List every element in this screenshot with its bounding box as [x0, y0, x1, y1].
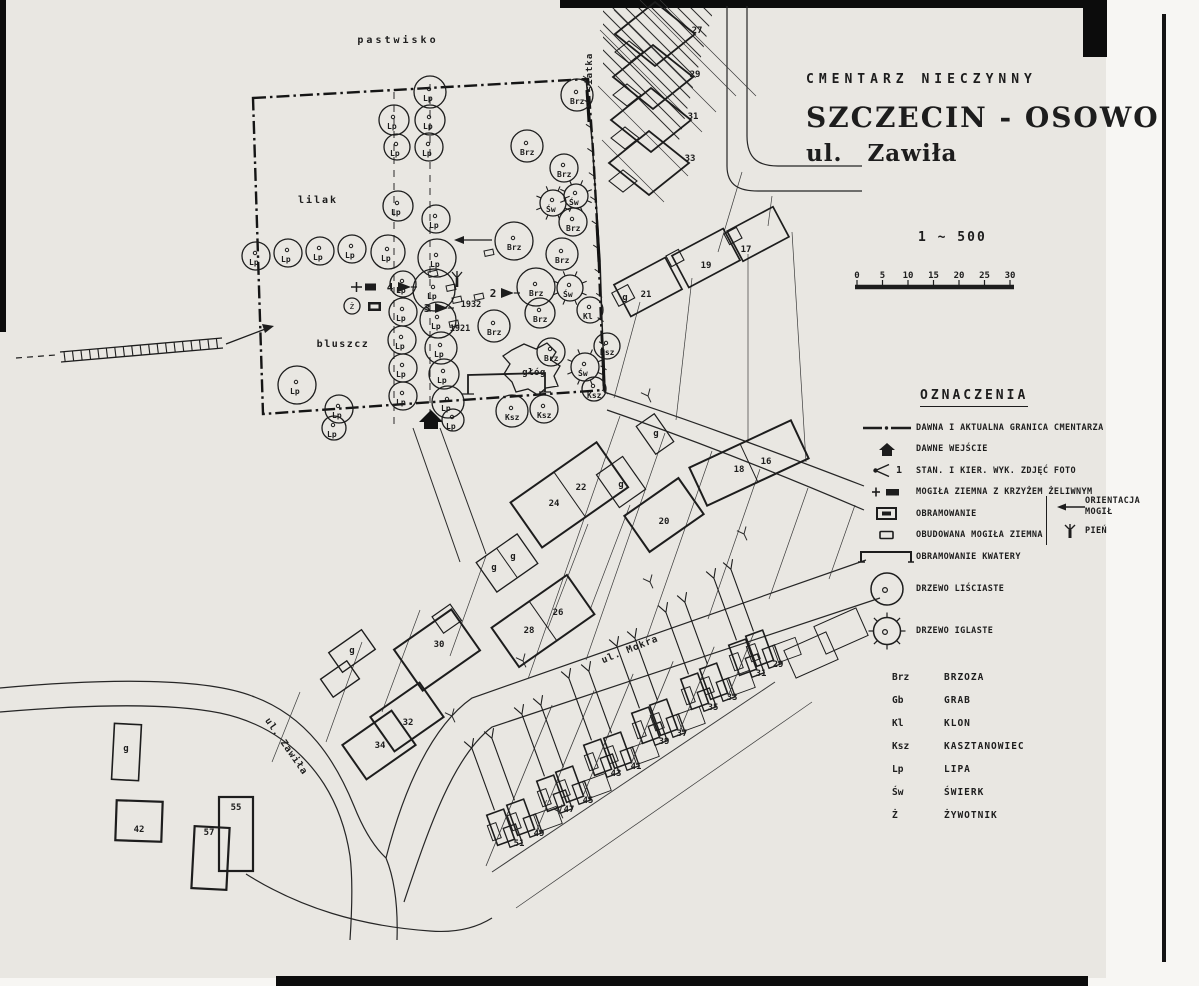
house-number: 41 [631, 762, 642, 772]
house-number: 51 [514, 839, 525, 849]
quarter-frame-icon [858, 548, 916, 565]
tree-label: Lp [396, 314, 406, 323]
house-number: g [491, 563, 496, 573]
scale-tick-label: 10 [903, 271, 914, 281]
house-number: 29 [773, 660, 784, 670]
legend-item: 1STAN. I KIER. WYK. ZDJĘĆ FOTO [858, 460, 1163, 482]
species-name: KLON [944, 718, 971, 729]
orientation-arrow-icon [1055, 502, 1085, 512]
scan-edge-bottom [276, 976, 1088, 986]
legend: OZNACZENIA DAWNA I AKTUALNA GRANICA CMEN… [858, 384, 1163, 827]
species-name: BRZOZA [944, 672, 984, 683]
legend-heading: OZNACZENIA [920, 388, 1028, 407]
house-number: 26 [553, 608, 564, 618]
tree-label: Lp [423, 94, 433, 103]
tree-label: Lp [249, 258, 259, 267]
tree-label: Lp [313, 253, 323, 262]
house-number: 34 [375, 741, 386, 751]
house-number: 33 [685, 154, 696, 164]
plan-title: SZCZECIN - OSOWO [806, 101, 1136, 134]
legend-item: OBRAMOWANIE KWATERY [858, 546, 1163, 568]
legend-item-label: DAWNA I AKTUALNA GRANICA CMENTARZA [916, 423, 1104, 433]
house-number: 24 [549, 499, 560, 509]
tree-label: ż [349, 302, 354, 312]
tree-label: Lp [446, 422, 456, 431]
map-label: siatka [584, 53, 595, 92]
species-name: LIPA [944, 764, 971, 775]
scale-tick-label: 25 [979, 271, 990, 281]
iron-cross-grave [365, 284, 376, 291]
species-abbr: Ksz [892, 741, 944, 752]
house-number: g [123, 744, 128, 754]
tree-deciduous-icon [858, 570, 916, 608]
legend-item: DRZEWO IGLASTE [858, 610, 1163, 652]
tree-label: Brz [570, 97, 585, 106]
built-grave-icon [858, 530, 916, 540]
legend-item-label: DRZEWO LIŚCIASTE [916, 584, 1004, 594]
house-number: 18 [734, 465, 745, 475]
tree-label: Lp [390, 149, 400, 158]
tree-label: Św [578, 367, 588, 378]
tree-label: Brz [533, 315, 548, 324]
obramowanie-map [368, 302, 381, 311]
boundary-line-icon [858, 421, 916, 435]
cemetery-status: CMENTARZ NIECZYNNY [806, 72, 1136, 87]
species-abbreviation: LpLIPA [892, 758, 1163, 781]
house-number: 31 [688, 112, 699, 122]
house-number: g [622, 293, 627, 303]
tree-label: Lp [396, 370, 406, 379]
tree-label: Brz [507, 243, 522, 252]
species-name: KASZTANOWIEC [944, 741, 1025, 752]
tree-label: Św [546, 203, 556, 214]
map-label: bluszcz [317, 339, 370, 350]
photo-station-icon: 1 [858, 463, 916, 478]
legend-item-label: DAWNE WEJŚCIE [916, 444, 988, 454]
house-number: 37 [677, 729, 688, 739]
legend-item-label: ORIENTACJA MOGIŁ [1085, 496, 1172, 517]
house-number: 43 [611, 769, 622, 779]
species-abbr: Gb [892, 695, 944, 706]
house-number: 28 [524, 626, 535, 636]
tree-label: Św [563, 288, 573, 299]
tree-label: Lp [387, 122, 397, 131]
species-name: GRAB [944, 695, 971, 706]
legend-item-label: OBUDOWANA MOGIŁA ZIEMNA [916, 530, 1043, 540]
species-abbr: Ż [892, 810, 944, 821]
tree-label: Lp [290, 387, 300, 396]
house-number: 20 [659, 517, 670, 527]
scale-tick-label: 5 [880, 271, 885, 281]
tree-label: Brz [566, 224, 581, 233]
house-number: 21 [641, 290, 652, 300]
house-number: g [653, 429, 658, 439]
house-number: 39 [659, 737, 670, 747]
legend-item: DRZEWO LIŚCIASTE [858, 568, 1163, 610]
house-number: 35 [708, 703, 719, 713]
house-number: 17 [741, 245, 752, 255]
species-abbreviation: ŚwŚWIERK [892, 781, 1163, 804]
tree-label: Lp [423, 122, 433, 131]
tree-label: Lp [345, 251, 355, 260]
species-name: ŻYWOTNIK [944, 810, 998, 821]
tree-label: Kl [583, 312, 593, 321]
species-abbreviation: GbGRAB [892, 689, 1163, 712]
tree-label: Św [569, 196, 579, 207]
map-label: głóg [522, 367, 546, 378]
grave-cross-icon [858, 486, 916, 498]
frame-filled-icon [858, 507, 916, 520]
tree-label: Brz [544, 354, 559, 363]
species-abbreviation: KlKLON [892, 712, 1163, 735]
entrance-arrow-icon [858, 443, 916, 456]
legend-side-item: PIEŃ [1055, 523, 1172, 539]
tree-label: Lp [281, 255, 291, 264]
house-number: 32 [403, 718, 414, 728]
tree-label: Brz [529, 289, 544, 298]
scale-tick-label: 30 [1005, 271, 1016, 281]
tree-label: Lp [396, 398, 406, 407]
svg-text:3: 3 [424, 302, 431, 315]
tree-label: Lp [327, 430, 337, 439]
tree-label: Ksz [537, 411, 552, 420]
species-name: ŚWIERK [944, 787, 984, 798]
tree-label: Lp [381, 254, 391, 263]
house-number: 29 [690, 70, 701, 80]
house-number: g [510, 552, 515, 562]
svg-text:2: 2 [490, 287, 497, 300]
title-block: CMENTARZ NIECZYNNY SZCZECIN - OSOWO ul. … [806, 72, 1136, 167]
photo-sample-number: 1 [896, 465, 902, 476]
house-number: 47 [564, 805, 575, 815]
tree-label: Brz [520, 148, 535, 157]
grave-date: 1932 [461, 300, 481, 310]
house-number: 45 [583, 796, 594, 806]
legend-tree-items: DRZEWO LIŚCIASTEDRZEWO IGLASTE [858, 568, 1163, 652]
house-number: g [618, 480, 623, 490]
scan-edge-top [560, 0, 1106, 8]
species-abbr: Kl [892, 718, 944, 729]
house-number: 16 [761, 457, 772, 467]
species-abbreviation: ŻŻYWOTNIK [892, 804, 1163, 827]
map-label: lilak [298, 194, 338, 206]
species-abbreviation: BrzBRZOZA [892, 666, 1163, 689]
tree-label: Lp [430, 260, 440, 269]
grave-date: 1921 [450, 324, 470, 334]
tree-coniferous-icon [858, 611, 916, 651]
legend-item: DAWNE WEJŚCIE [858, 439, 1163, 461]
tree-label: Ksz [600, 348, 615, 357]
legend-item-label: PIEŃ [1085, 526, 1107, 537]
legend-side-items: ORIENTACJA MOGIŁPIEŃ [1046, 496, 1172, 545]
tree-label: Brz [487, 328, 502, 337]
scale-tick-label: 0 [854, 271, 859, 281]
legend-item-label: STAN. I KIER. WYK. ZDJĘĆ FOTO [916, 466, 1076, 476]
house-number: 57 [204, 828, 215, 838]
house-number: 30 [434, 640, 445, 650]
legend-item-label: DRZEWO IGLASTE [916, 626, 993, 636]
svg-text:4: 4 [387, 281, 394, 294]
legend-abbreviations: BrzBRZOZAGbGRABKlKLONKszKASZTANOWIECLpLI… [892, 666, 1163, 827]
plan-street: ul. Zawiła [806, 140, 1136, 167]
legend-item-label: OBRAMOWANIE [916, 509, 977, 519]
tree-label: Lp [395, 342, 405, 351]
house-number: 19 [701, 261, 712, 271]
house-number: 27 [692, 26, 703, 36]
legend-side-item: ORIENTACJA MOGIŁ [1055, 496, 1172, 517]
tree-label: Ksz [587, 391, 602, 400]
scale-ratio: 1 ~ 500 [918, 230, 987, 245]
tree-label: Ksz [505, 413, 520, 422]
tree-label: Lp [427, 292, 437, 301]
legend-item-label: OBRAMOWANIE KWATERY [916, 552, 1021, 562]
house-number: 22 [576, 483, 587, 493]
stump-icon [1055, 523, 1085, 539]
tree-label: Brz [555, 256, 570, 265]
house-number: 42 [134, 825, 145, 835]
tree-label: Lp [437, 376, 447, 385]
legend-item: DAWNA I AKTUALNA GRANICA CMENTARZA [858, 417, 1163, 439]
species-abbreviation: KszKASZTANOWIEC [892, 735, 1163, 758]
tree-label: Lp [434, 350, 444, 359]
species-abbr: Brz [892, 672, 944, 683]
species-abbr: Lp [892, 764, 944, 775]
scanned-cemetery-plan: LpLpLpLpLpBrzBrzBrzŚwŚwBrzLpLpLpLpLpLpLp… [0, 0, 1199, 986]
tree-label: Brz [557, 170, 572, 179]
map-label: pastwisko [357, 34, 438, 46]
tree-label: Lp [431, 322, 441, 331]
house-number: 49 [534, 829, 545, 839]
tree-label: Lp [391, 208, 401, 217]
tree-label: Lp [429, 221, 439, 230]
house-number: 55 [231, 803, 242, 813]
scale-tick-label: 20 [954, 271, 965, 281]
house-number: 33 [727, 693, 738, 703]
tree-label: Lp [422, 149, 432, 158]
species-abbr: Św [892, 787, 944, 798]
scan-blob [1083, 0, 1107, 57]
scale-tick-label: 15 [928, 271, 939, 281]
scan-edge-left [0, 0, 6, 332]
house-number: 31 [756, 669, 767, 679]
house-number: g [349, 646, 354, 656]
